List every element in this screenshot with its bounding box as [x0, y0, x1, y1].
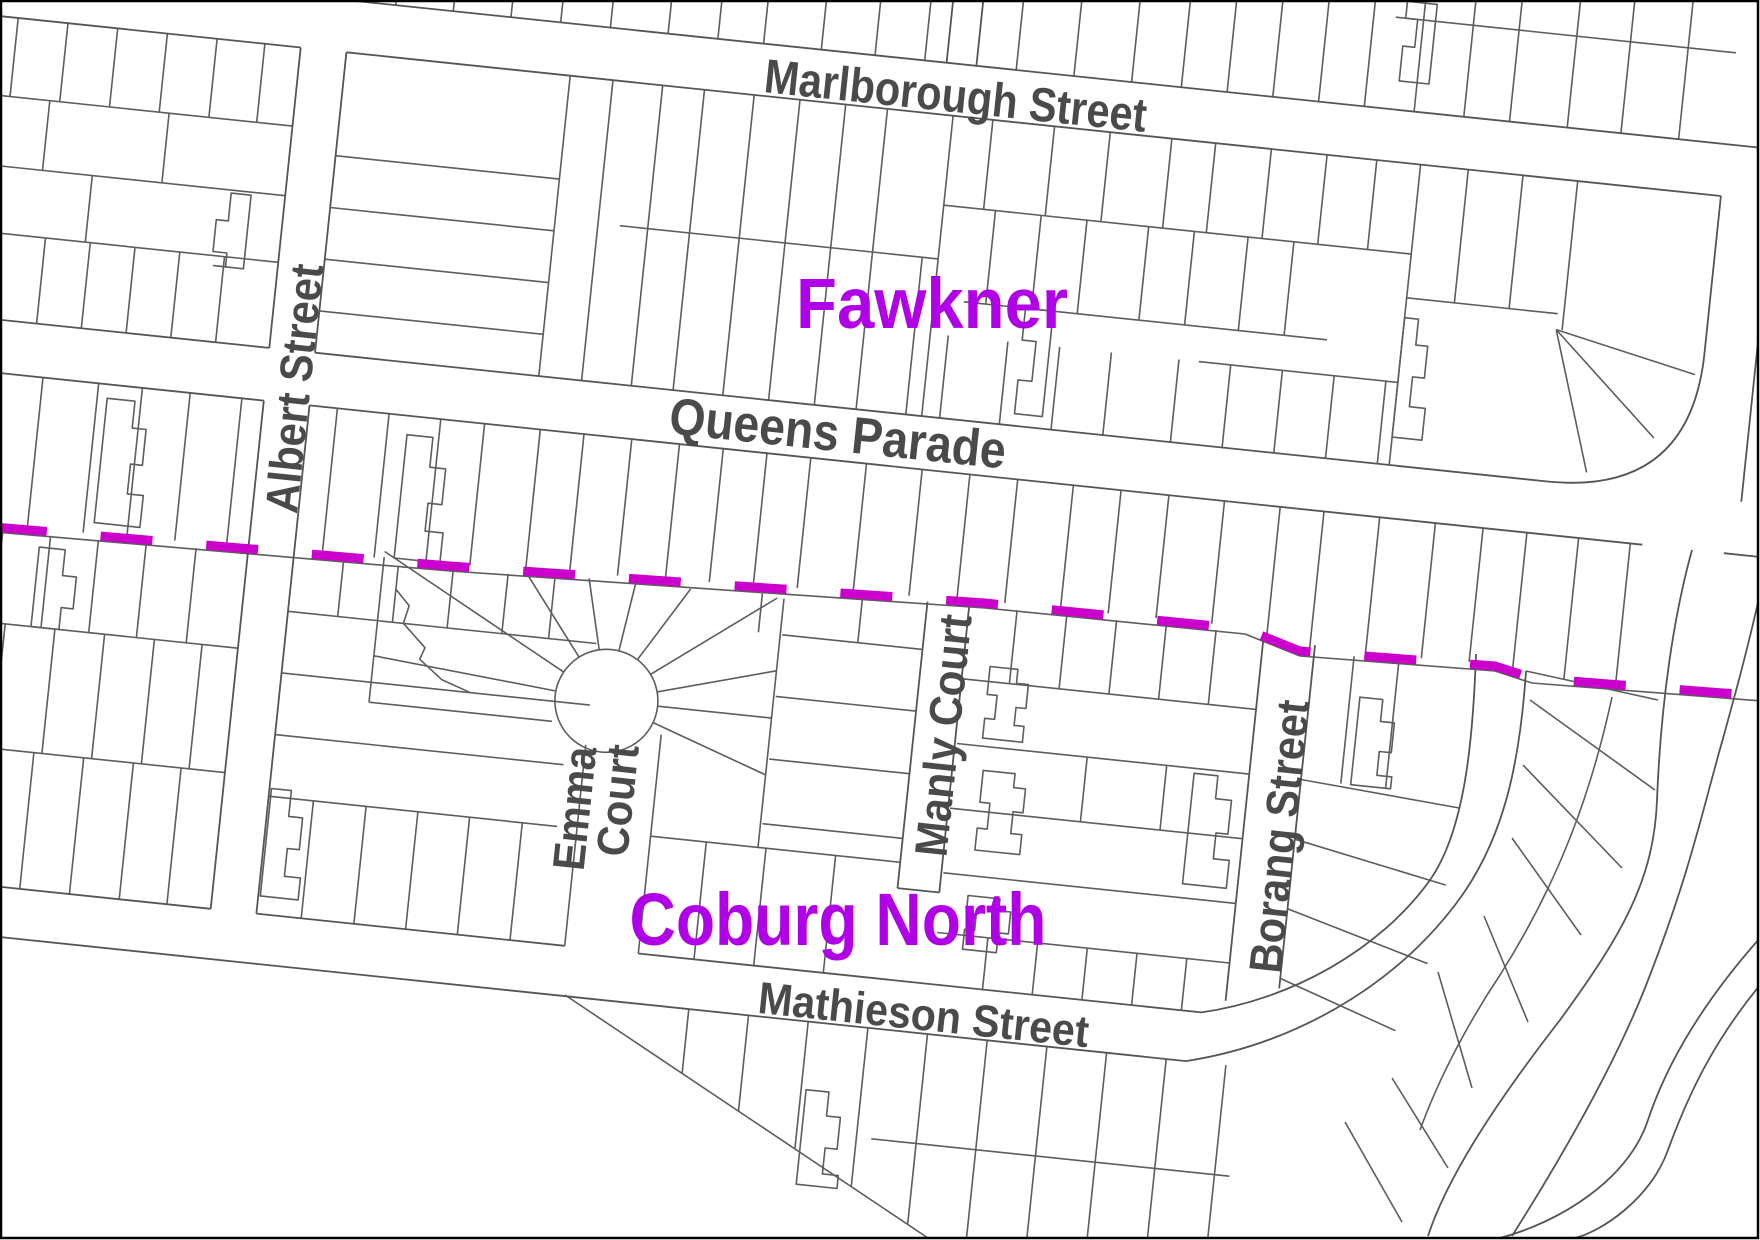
svg-text:Coburg North: Coburg North [630, 878, 1047, 961]
svg-text:Fawkner: Fawkner [796, 265, 1068, 344]
